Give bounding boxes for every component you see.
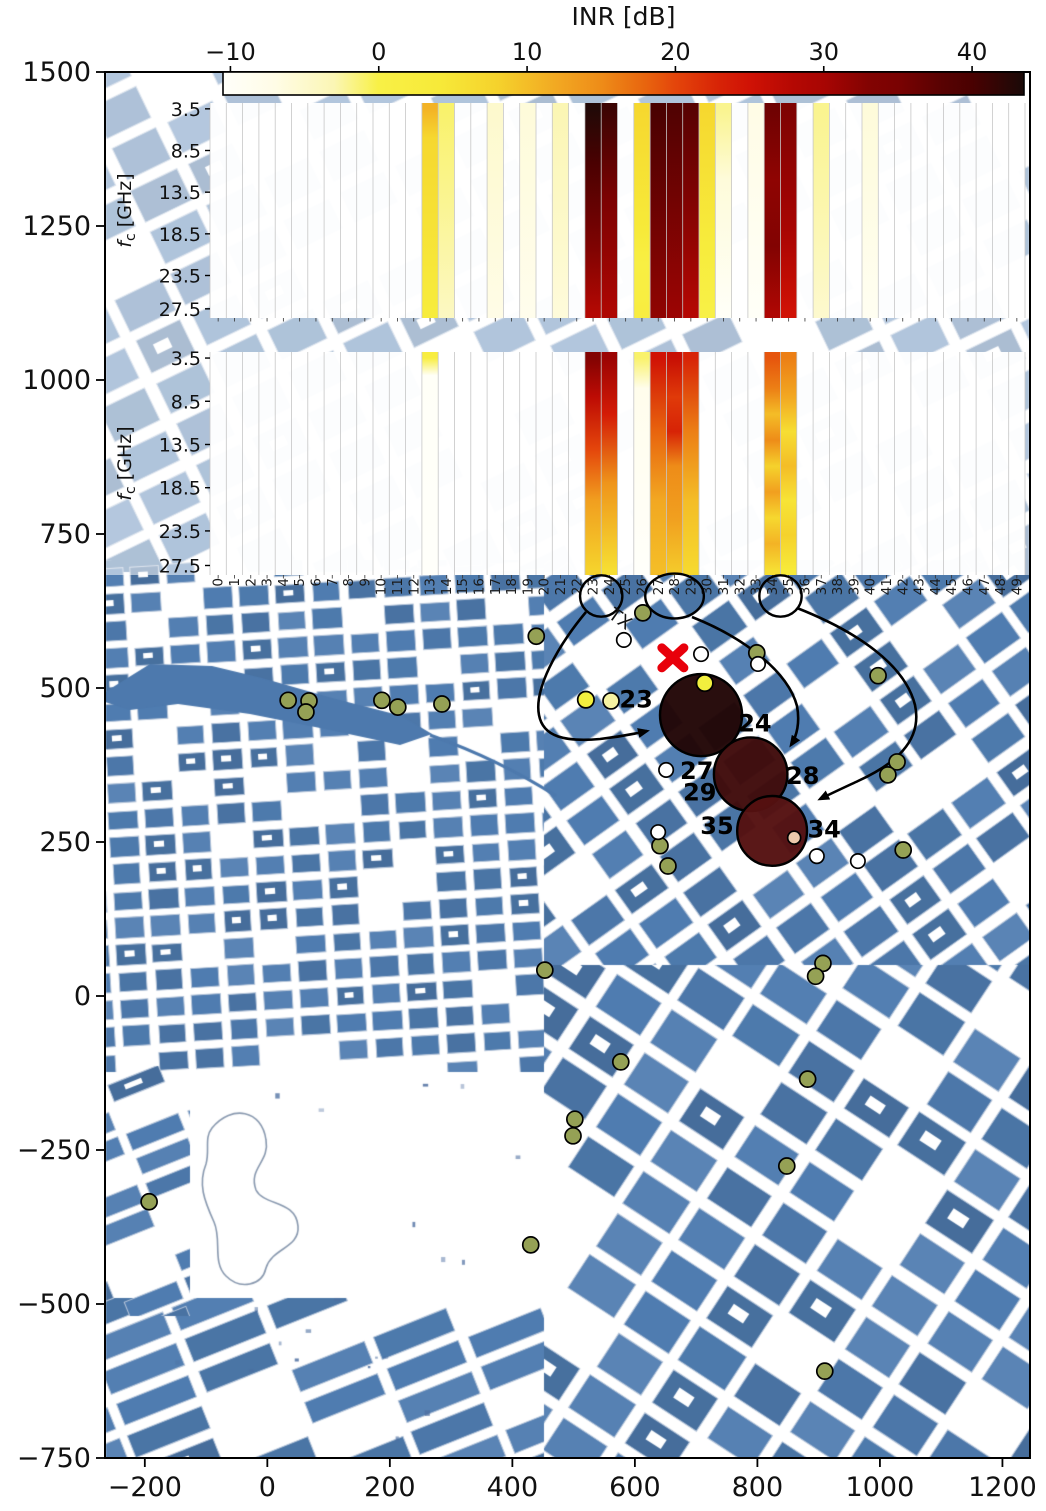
channel-label-15: 15 <box>455 578 471 595</box>
channel-label-12: 12 <box>406 578 422 595</box>
interferer-label-28: 28 <box>786 762 819 790</box>
channel-label-13: 13 <box>423 578 439 595</box>
heatmap-column-ch23 <box>585 352 601 575</box>
panel-ytick-label: 13.5 <box>159 182 201 204</box>
sensor-dot-olive <box>565 1128 581 1144</box>
colorbar-gradient <box>223 72 1024 95</box>
x-tick-label: 800 <box>732 1472 784 1503</box>
colorbar-tick-label: 0 <box>371 38 386 66</box>
map-annotations: 23242729283534TX <box>141 603 911 1379</box>
heatmap-column-ch28 <box>666 103 682 318</box>
panel-ytick-label: 27.5 <box>159 299 201 321</box>
channel-label-32: 32 <box>732 578 748 595</box>
sensor-dot-olive <box>280 692 296 708</box>
sensor-dot-white <box>617 633 631 647</box>
heatmap-column-ch24 <box>601 103 617 318</box>
heatmap-column-ch13 <box>422 352 438 575</box>
heatmap-column-ch26 <box>634 352 650 575</box>
channel-label-0: 0 <box>211 578 227 587</box>
sensor-dot-olive <box>374 692 390 708</box>
y-tick-label: −250 <box>17 1135 91 1166</box>
channel-label-37: 37 <box>814 578 830 595</box>
heatmap-column-ch35 <box>781 103 797 318</box>
heatmap-column-ch19 <box>520 103 536 318</box>
sensor-dot-white <box>659 763 673 777</box>
x-tick-label: 200 <box>364 1472 416 1503</box>
x-tick-label: 1200 <box>968 1472 1037 1503</box>
y-tick-label: 1500 <box>22 57 91 88</box>
sensor-dot-olive <box>434 696 450 712</box>
sensor-dot-olive <box>808 968 824 984</box>
sensor-dot-olive <box>635 605 651 621</box>
sensor-dot-white <box>651 825 665 839</box>
channel-label-1: 1 <box>227 578 243 587</box>
channel-label-2: 2 <box>243 578 259 587</box>
sensor-dot-yellow <box>697 675 713 691</box>
channel-label-9: 9 <box>357 578 373 587</box>
sensor-dot-olive <box>895 842 911 858</box>
y-tick-label: 500 <box>39 673 91 704</box>
heatmap-column-ch30 <box>699 103 715 318</box>
heatmap-column-ch21 <box>552 103 568 318</box>
sensor-dot-olive <box>141 1194 157 1210</box>
x-tick-label: 600 <box>609 1472 661 1503</box>
sensor-dot-olive <box>817 1363 833 1379</box>
heatmap-panel-2: 3.58.513.518.523.527.5fc [GHz] <box>114 348 1025 578</box>
channel-label-48: 48 <box>993 578 1009 595</box>
heatmap-column-ch14 <box>438 103 454 318</box>
panel-ytick-label: 3.5 <box>171 348 201 370</box>
sensor-dot-olive <box>870 668 886 684</box>
x-tick-label: 0 <box>259 1472 276 1503</box>
colorbar-tick-label: 10 <box>512 38 543 66</box>
heatmap-column-ch40 <box>862 103 878 318</box>
heatmap-column-ch23 <box>585 103 601 318</box>
sensor-dot-olive <box>298 704 314 720</box>
channel-label-6: 6 <box>308 578 324 587</box>
chart-overlay: 3.58.513.518.523.527.5fc [GHz]3.58.513.5… <box>0 0 1046 1511</box>
colorbar-tick-label: 40 <box>957 38 988 66</box>
channel-label-8: 8 <box>341 578 357 587</box>
heatmap-column-ch35 <box>781 352 797 575</box>
channel-label-20: 20 <box>537 578 553 595</box>
tx-label: TX <box>604 603 636 634</box>
heatmap-column-ch27 <box>650 103 666 318</box>
channel-label-16: 16 <box>471 578 487 595</box>
channel-label-10: 10 <box>374 578 390 595</box>
y-tick-label: −750 <box>17 1443 91 1474</box>
y-tick-label: 1000 <box>22 365 91 396</box>
sensor-dot-olive <box>390 699 406 715</box>
heatmap-column-ch17 <box>487 103 503 318</box>
sensor-dot-white <box>851 854 865 868</box>
sensor-dot-white <box>694 647 708 661</box>
colorbar-tick-label: 20 <box>660 38 691 66</box>
heatmap-panel-1: 3.58.513.518.523.527.5fc [GHz] <box>114 99 1025 322</box>
colorbar-tick-label: −10 <box>205 38 256 66</box>
sensor-dot-pink <box>788 831 801 844</box>
panel-ytick-label: 13.5 <box>159 434 201 456</box>
heatmap-column-ch29 <box>683 352 699 575</box>
sensor-dot-pale-yellow <box>603 693 619 709</box>
channel-label-11: 11 <box>390 578 406 595</box>
channel-label-43: 43 <box>912 578 928 595</box>
heatmap-column-ch34 <box>764 103 780 318</box>
heatmap-column-ch24 <box>601 352 617 575</box>
channel-label-40: 40 <box>863 578 879 595</box>
x-tick-label: −200 <box>108 1472 182 1503</box>
channel-label-44: 44 <box>928 578 944 595</box>
channel-label-49: 49 <box>1009 578 1025 595</box>
sensor-dot-olive <box>660 858 676 874</box>
colorbar-title: INR [dB] <box>223 2 1024 31</box>
panel-ytick-label: 8.5 <box>171 391 201 413</box>
interferer-label-23: 23 <box>619 686 652 714</box>
sensor-dot-olive <box>537 962 553 978</box>
channel-label-28: 28 <box>667 578 683 595</box>
heatmap-column-ch27 <box>650 352 666 575</box>
interference-arrow-1 <box>538 612 647 740</box>
panel-ytick-label: 18.5 <box>159 224 201 246</box>
channel-label-4: 4 <box>276 578 292 587</box>
channel-label-17: 17 <box>488 578 504 595</box>
channel-label-21: 21 <box>553 578 569 595</box>
y-tick-label: 250 <box>39 827 91 858</box>
figure-root: 3.58.513.518.523.527.5fc [GHz]3.58.513.5… <box>0 0 1046 1511</box>
x-tick-label: 1000 <box>846 1472 915 1503</box>
sensor-dot-olive <box>779 1158 795 1174</box>
heatmap-column-ch34 <box>764 352 780 575</box>
sensor-dot-olive <box>528 628 544 644</box>
y-tick-label: 1250 <box>22 211 91 242</box>
panel-ytick-label: 27.5 <box>159 555 201 577</box>
channel-label-46: 46 <box>960 578 976 595</box>
channel-label-3: 3 <box>260 578 276 587</box>
channel-label-39: 39 <box>846 578 862 595</box>
panel-ytick-label: 23.5 <box>159 521 201 543</box>
x-tick-label: 400 <box>487 1472 539 1503</box>
colorbar-tick-label: 30 <box>808 38 839 66</box>
heatmap-column-ch37 <box>813 103 829 318</box>
sensor-dot-olive <box>880 767 896 783</box>
panel-ytick-label: 23.5 <box>159 266 201 288</box>
channel-label-47: 47 <box>977 578 993 595</box>
sensor-dot-white <box>810 849 824 863</box>
channel-label-18: 18 <box>504 578 520 595</box>
y-tick-label: 0 <box>74 981 91 1012</box>
sensor-dot-yellow <box>578 692 594 708</box>
panel-ytick-label: 18.5 <box>159 478 201 500</box>
heatmap-column-ch13 <box>422 103 438 318</box>
heatmap-column-ch28 <box>666 352 682 575</box>
sensor-dot-olive <box>523 1237 539 1253</box>
panel-ytick-label: 3.5 <box>171 99 201 121</box>
channel-label-41: 41 <box>879 578 895 595</box>
channel-label-5: 5 <box>292 578 308 587</box>
sensor-dot-olive <box>613 1054 629 1070</box>
y-tick-label: 750 <box>39 519 91 550</box>
sensor-dot-olive <box>567 1111 583 1127</box>
heatmap-column-ch31 <box>715 103 731 318</box>
y-tick-label: −500 <box>17 1289 91 1320</box>
interferer-label-34: 34 <box>807 816 840 844</box>
sensor-dot-white <box>751 657 765 671</box>
panel-ytick-label: 8.5 <box>171 141 201 163</box>
channel-label-31: 31 <box>716 578 732 595</box>
interferer-label-24: 24 <box>738 710 771 738</box>
interferer-label-35: 35 <box>700 812 733 840</box>
interferer-label-29: 29 <box>683 779 716 807</box>
channel-label-45: 45 <box>944 578 960 595</box>
tx-marker <box>662 648 684 668</box>
channel-label-38: 38 <box>830 578 846 595</box>
channel-label-14: 14 <box>439 578 455 595</box>
channel-label-19: 19 <box>520 578 536 595</box>
heatmap-column-ch26 <box>634 103 650 318</box>
channel-label-7: 7 <box>325 578 341 587</box>
sensor-dot-olive <box>800 1071 816 1087</box>
heatmap-column-ch29 <box>683 103 699 318</box>
heatmap-column-ch33 <box>748 103 764 318</box>
sensor-dot-olive <box>652 838 668 854</box>
channel-label-42: 42 <box>895 578 911 595</box>
colorbar: −10010203040 <box>205 38 1024 95</box>
